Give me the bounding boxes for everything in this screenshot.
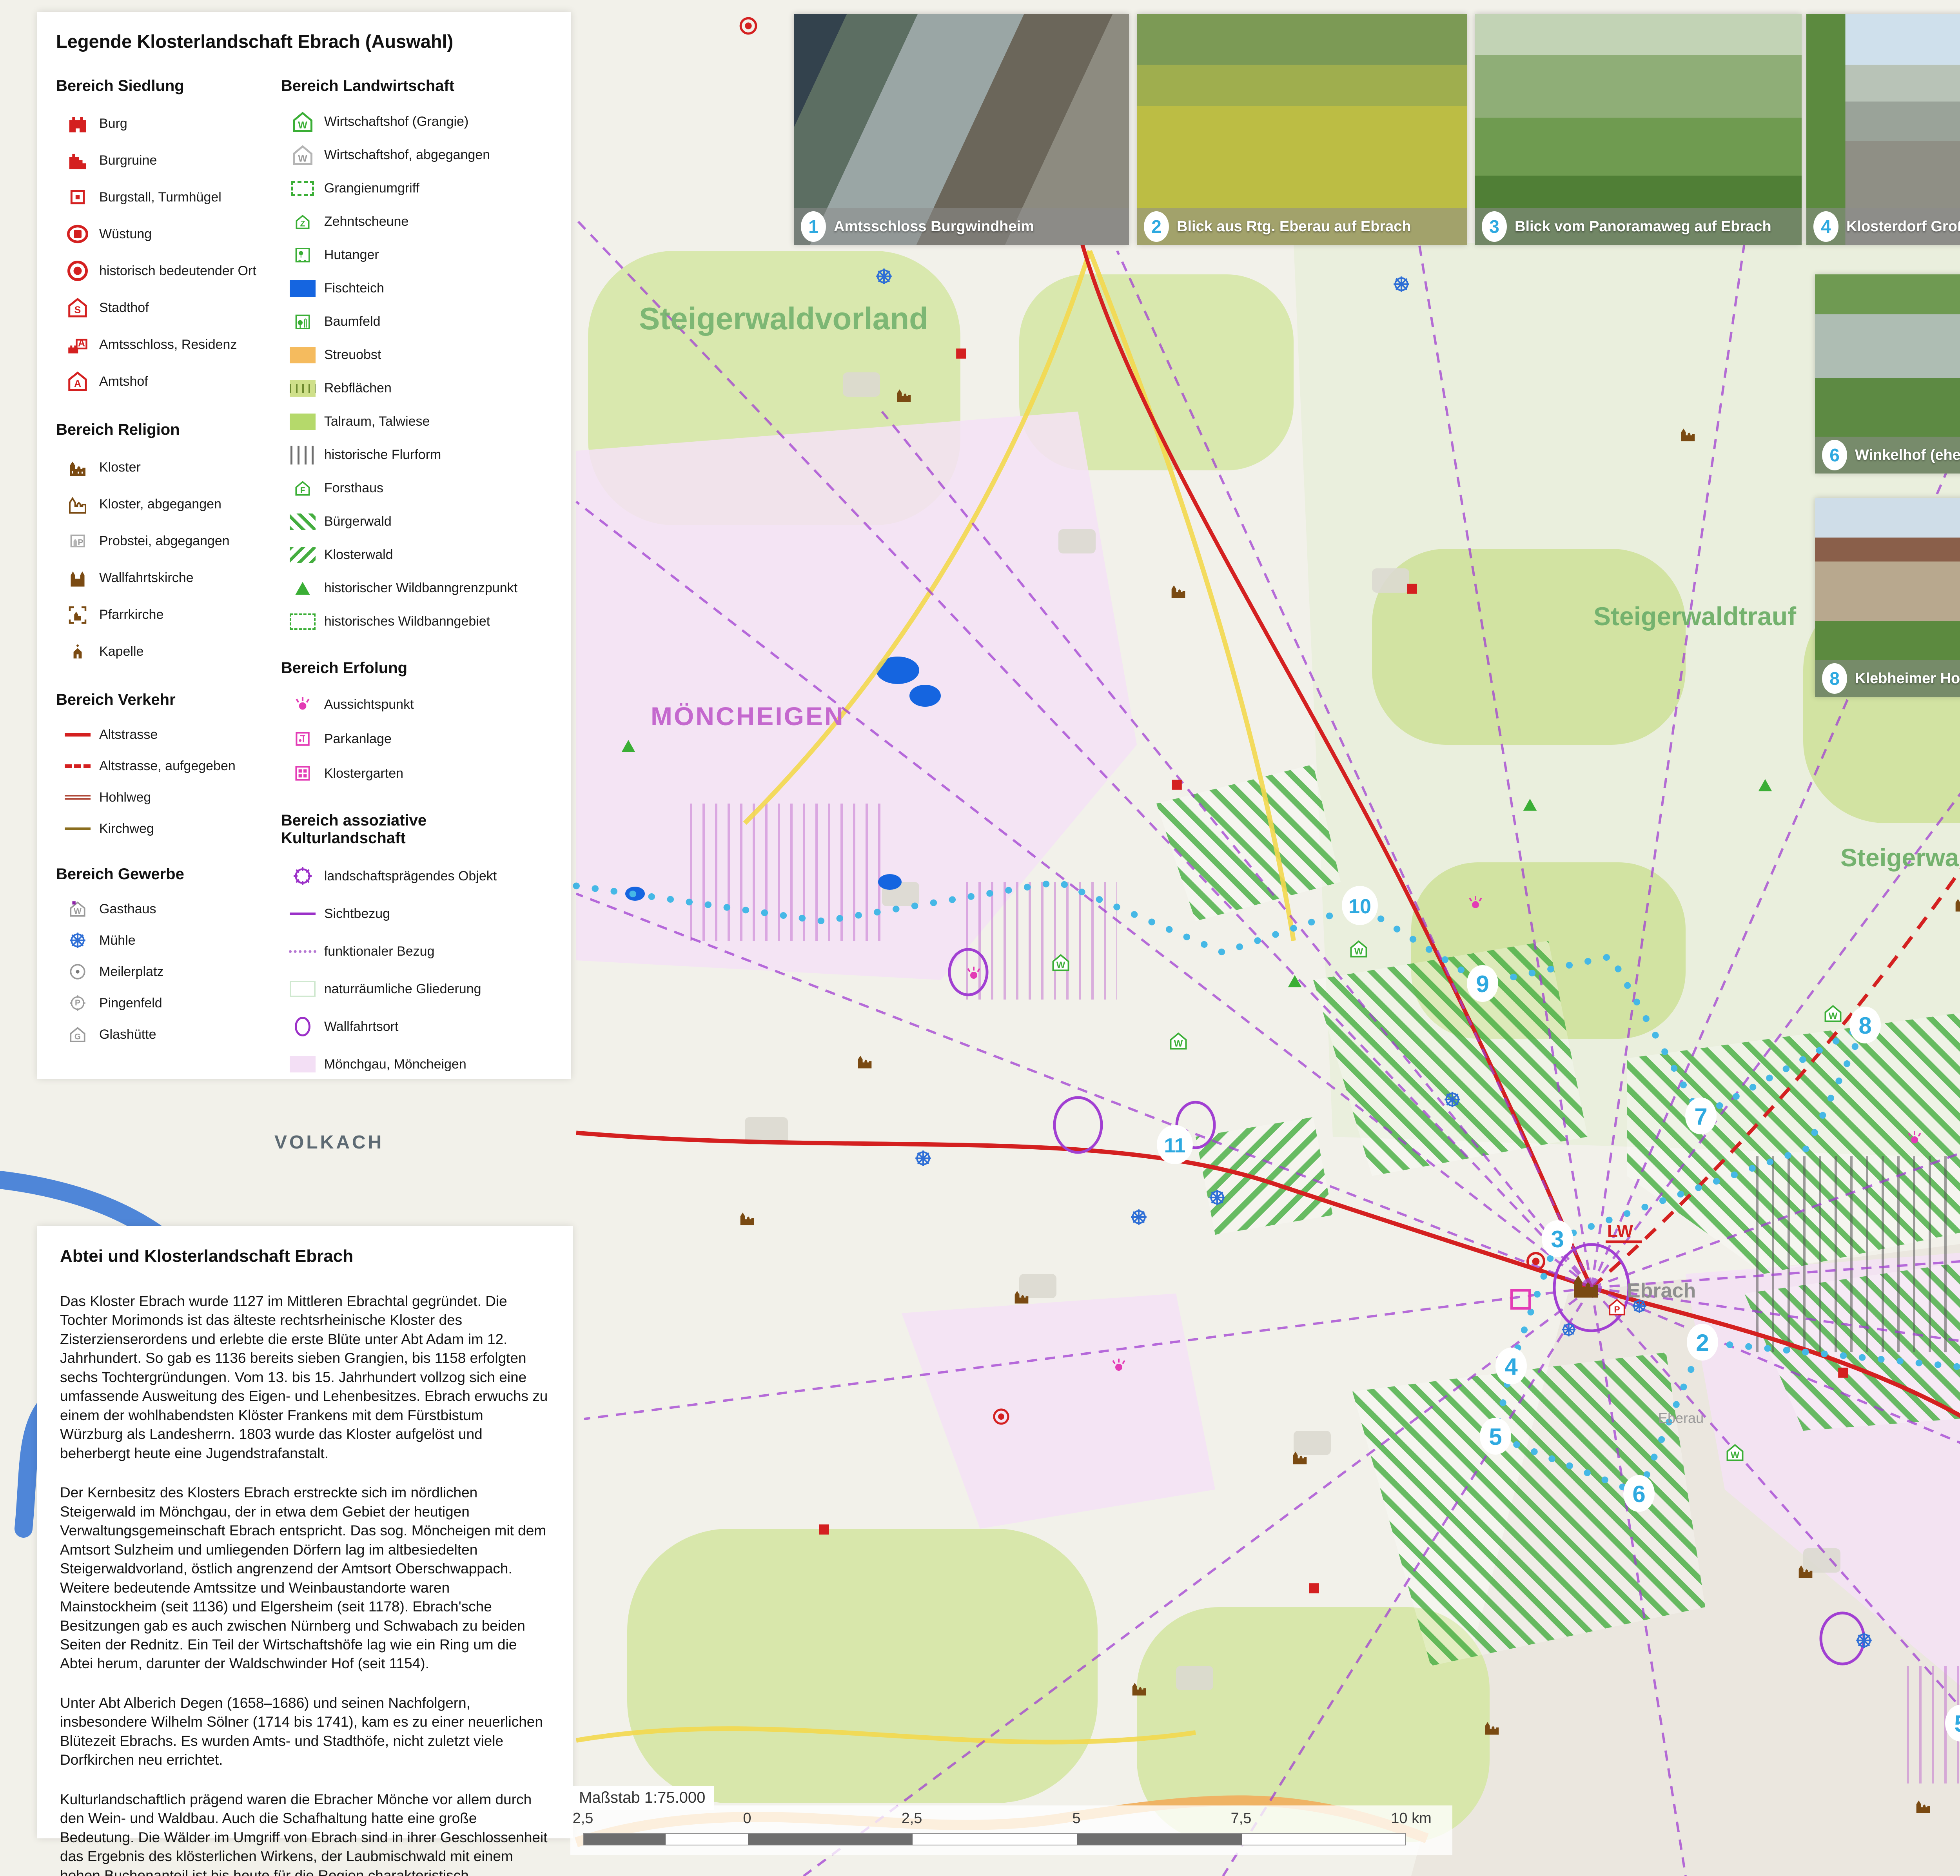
muehle-icon	[56, 931, 99, 950]
legend-item-streuobst: Streuobst	[281, 338, 552, 372]
legend-item-altstrasse-aufg: Altstrasse, aufgegeben	[56, 750, 269, 782]
photo-number-badge: 8	[1822, 663, 1847, 694]
legend-section-gewerbe: Bereich Gewerbe WGasthaus Mühle Meilerpl…	[56, 865, 269, 1050]
legend-item-hutanger: Hutanger	[281, 238, 552, 272]
photo-2: 2Blick aus Rtg. Eberau auf Ebrach	[1137, 14, 1467, 245]
legend-item-burgruine: Burgruine	[56, 142, 269, 179]
svg-text:3: 3	[1551, 1226, 1564, 1252]
scale-tick: 5	[1072, 1810, 1080, 1827]
legend-section-siedlung: Bereich Siedlung Burg Burgruine Burgstal…	[56, 77, 269, 400]
legend-item-wirtschaftshof-abg: WWirtschaftshof, abgegangen	[281, 138, 552, 172]
map-poster: W P	[0, 0, 1960, 1876]
photo-caption: Klosterdorf Großgressingen	[1846, 218, 1960, 235]
svg-text:2: 2	[1696, 1330, 1709, 1356]
burgstall-icon	[56, 187, 99, 207]
label-volkach: VOLKACH	[274, 1132, 384, 1153]
label-steigerwaldvorland: Steigerwaldvorland	[639, 301, 928, 336]
amtsschloss-icon: A	[56, 333, 99, 356]
photo-1: 1Amtsschloss Burgwindheim	[794, 14, 1129, 245]
fischteich-icon	[281, 280, 324, 297]
svg-text:P: P	[75, 998, 80, 1007]
legend-item-kloster: Kloster	[56, 449, 269, 486]
legend-item-baumfeld: Baumfeld	[281, 305, 552, 338]
wuestung-icon	[56, 222, 99, 246]
hist-ort-icon	[56, 259, 99, 283]
legend-item-grangienumgriff: Grangienumgriff	[281, 172, 552, 205]
scale-tick: 7,5	[1231, 1810, 1252, 1827]
legend-item-landschaftsobjekt: landschaftsprägendes Objekt	[281, 857, 552, 895]
legend-item-wirtschaftshof: WWirtschaftshof (Grangie)	[281, 105, 552, 138]
label-lw: LW	[1607, 1221, 1633, 1241]
legend-item-talraum: Talraum, Talwiese	[281, 405, 552, 438]
svg-text:5: 5	[1954, 1711, 1960, 1737]
legend-item-wuestung: Wüstung	[56, 216, 269, 252]
legend-item-hohlweg: Hohlweg	[56, 782, 269, 813]
scale-tick: 0	[743, 1810, 751, 1827]
legend-item-kirchweg: Kirchweg	[56, 813, 269, 844]
kloster-abgegangen-icon	[56, 492, 99, 516]
legend-item-stadthof: SStadthof	[56, 289, 269, 326]
hohlweg-icon	[56, 795, 99, 800]
legend-item-sichtbezug: Sichtbezug	[281, 895, 552, 933]
legend-section-erholung: Bereich Erfolung Aussichtspunkt Parkanla…	[281, 659, 552, 791]
svg-text:7: 7	[1694, 1103, 1707, 1130]
legend-item-flurform: historische Flurform	[281, 438, 552, 472]
svg-text:F: F	[300, 486, 305, 495]
legend-item-fischteich: Fischteich	[281, 272, 552, 305]
burgruine-icon	[56, 149, 99, 172]
legend-panel: Legende Klosterlandschaft Ebrach (Auswah…	[37, 12, 571, 1079]
svg-text:A: A	[78, 338, 85, 349]
article-paragraph: Unter Abt Alberich Degen (1658–1686) und…	[60, 1694, 550, 1770]
moenchgau-swatch	[281, 1056, 324, 1072]
svg-text:W: W	[298, 153, 307, 164]
legend-item-glashuette: GGlashütte	[56, 1019, 269, 1050]
legend-item-altstrasse: Altstrasse	[56, 719, 269, 750]
svg-text:4: 4	[1504, 1353, 1518, 1380]
glashuette-icon: G	[56, 1025, 99, 1044]
legend-item-zehntscheune: ZZehntscheune	[281, 205, 552, 238]
grangienumgriff-icon	[281, 181, 324, 196]
wildbanngebiet-icon	[281, 613, 324, 630]
legend-item-amtshof: AAmtshof	[56, 363, 269, 400]
photo-number-badge: 3	[1482, 211, 1507, 242]
photo-6: 6Winkelhof (ehem. Grangie)	[1815, 274, 1960, 474]
legend-item-moenchgau: Mönchgau, Möncheigen	[281, 1045, 552, 1079]
legend-title: Legende Klosterlandschaft Ebrach (Auswah…	[56, 31, 552, 52]
label-eberau: Eberau	[1658, 1410, 1704, 1426]
article-paragraph: Kulturlandschaftlich prägend waren die E…	[60, 1790, 550, 1876]
gasthaus-icon: W	[56, 899, 99, 919]
legend-section-verkehr: Bereich Verkehr Altstrasse Altstrasse, a…	[56, 691, 269, 844]
wildbanngrenzpunkt-icon	[281, 579, 324, 598]
photo-caption: Winkelhof (ehem. Grangie)	[1855, 447, 1960, 464]
legend-item-wildbanngebiet: historisches Wildbanngebiet	[281, 605, 552, 638]
article-paragraph: Der Kernbesitz des Klosters Ebrach erstr…	[60, 1483, 550, 1673]
zehntscheune-icon: Z	[281, 212, 324, 232]
photo-caption: Klebheimer Hof (ehem. Grangie)	[1855, 670, 1960, 687]
flurform-icon	[281, 446, 324, 464]
probstei-icon: P	[56, 531, 99, 551]
svg-text:5: 5	[1489, 1424, 1502, 1450]
photo-caption: Amtsschloss Burgwindheim	[834, 218, 1034, 235]
svg-text:P: P	[78, 538, 83, 547]
kloster-icon	[56, 455, 99, 479]
svg-text:11: 11	[1164, 1134, 1186, 1157]
legend-section-landwirtschaft: Bereich Landwirtschaft WWirtschaftshof (…	[281, 77, 552, 638]
legend-item-rebflaechen: Rebflächen	[281, 372, 552, 405]
grangie-abgegangen-icon: W	[281, 143, 324, 167]
legend-item-forsthaus: FForsthaus	[281, 472, 552, 505]
kirchweg-icon	[56, 827, 99, 830]
pingenfeld-icon: P	[56, 993, 99, 1013]
svg-text:8: 8	[1858, 1012, 1871, 1039]
legend-item-kloster-abg: Kloster, abgegangen	[56, 486, 269, 523]
legend-item-funktionaler-bezug: funktionaler Bezug	[281, 933, 552, 970]
svg-text:A: A	[74, 378, 81, 389]
wallfahrtskirche-icon	[56, 566, 99, 590]
legend-item-meilerplatz: Meilerplatz	[56, 956, 269, 987]
hutanger-icon	[281, 245, 324, 265]
forsthaus-icon: F	[281, 479, 324, 498]
photo-caption: Blick vom Panoramaweg auf Ebrach	[1515, 218, 1771, 235]
buergerwald-icon	[281, 513, 324, 530]
altstrasse-icon	[56, 733, 99, 737]
legend-item-pingenfeld: PPingenfeld	[56, 987, 269, 1019]
aussichtspunkt-icon	[281, 695, 324, 714]
streuobst-icon	[281, 347, 324, 363]
legend-item-burgstall: Burgstall, Turmhügel	[56, 179, 269, 216]
scale-tick: 2,5	[573, 1810, 593, 1827]
legend-section-assoziativ: Bereich assoziative Kulturlandschaft lan…	[281, 812, 552, 1079]
legend-section-religion: Bereich Religion Kloster Kloster, abgega…	[56, 421, 269, 670]
photo-8: 8Klebheimer Hof (ehem. Grangie)	[1815, 498, 1960, 697]
legend-item-gasthaus: WGasthaus	[56, 893, 269, 925]
grangie-icon: W	[281, 110, 324, 134]
label-ebrach: Ebrach	[1627, 1279, 1696, 1302]
klosterwald-icon	[281, 547, 324, 563]
legend-item-wallfahrtsort: Wallfahrtsort	[281, 1008, 552, 1045]
label-steigerwaldtrauf: Steigerwaldtrauf	[1593, 602, 1797, 631]
legend-item-burg: Burg	[56, 105, 269, 142]
legend-item-parkanlage: Parkanlage	[281, 722, 552, 756]
svg-text:G: G	[74, 1032, 81, 1041]
legend-item-wallfahrtskirche: Wallfahrtskirche	[56, 559, 269, 596]
naturraum-icon	[281, 981, 324, 997]
legend-item-wildbannpunkt: historischer Wildbanngrenzpunkt	[281, 572, 552, 605]
article-paragraph: Das Kloster Ebrach wurde 1127 im Mittler…	[60, 1292, 550, 1463]
meilerplatz-icon	[56, 962, 99, 982]
article-panel: Abtei und Klosterlandschaft Ebrach Das K…	[37, 1226, 573, 1838]
amtshof-icon: A	[56, 370, 99, 393]
legend-item-aussichtspunkt: Aussichtspunkt	[281, 687, 552, 722]
legend-item-klostergarten: Klostergarten	[281, 756, 552, 791]
photo-number-badge: 6	[1822, 440, 1847, 470]
label-hochflaeche: Steigerwald-Hochfläche	[1840, 844, 1960, 872]
photo-caption: Blick aus Rtg. Eberau auf Ebrach	[1177, 218, 1411, 235]
burg-icon	[56, 112, 99, 135]
pfarrkirche-icon	[56, 603, 99, 626]
stadthof-icon: S	[56, 296, 99, 319]
svg-text:W: W	[74, 907, 82, 916]
wallfahrtsort-icon	[281, 1015, 324, 1038]
funktionaler-bezug-icon	[281, 950, 324, 953]
kapelle-icon	[56, 642, 99, 661]
article-title: Abtei und Klosterlandschaft Ebrach	[60, 1246, 550, 1266]
photo-4: 4Klosterdorf Großgressingen	[1806, 14, 1960, 245]
legend-item-probstei: PProbstei, abgegangen	[56, 523, 269, 559]
landschaftsobjekt-icon	[281, 864, 324, 888]
legend-item-pfarrkirche: Pfarrkirche	[56, 596, 269, 633]
scale-tick: 2,5	[902, 1810, 922, 1827]
legend-item-muehle: Mühle	[56, 925, 269, 956]
photo-number-badge: 1	[801, 211, 826, 242]
photo-3: 3Blick vom Panoramaweg auf Ebrach	[1475, 14, 1802, 245]
svg-text:S: S	[74, 305, 81, 316]
talraum-icon	[281, 414, 324, 430]
legend-item-naturraum: naturräumliche Gliederung	[281, 970, 552, 1008]
svg-text:10: 10	[1348, 895, 1371, 918]
legend-item-hist-ort: historisch bedeutender Ort	[56, 252, 269, 289]
legend-item-buergerwald: Bürgerwald	[281, 505, 552, 538]
baumfeld-icon	[281, 312, 324, 332]
scale-tick: 10 km	[1391, 1810, 1431, 1827]
legend-item-kapelle: Kapelle	[56, 633, 269, 670]
legend-item-klosterwald: Klosterwald	[281, 538, 552, 572]
svg-text:6: 6	[1632, 1481, 1645, 1507]
scale-bar-segments	[583, 1833, 1406, 1845]
svg-text:W: W	[298, 120, 307, 131]
altstrasse-aufgegeben-icon	[56, 764, 99, 768]
legend-item-amtsschloss: AAmtsschloss, Residenz	[56, 326, 269, 363]
parkanlage-icon	[281, 729, 324, 749]
label-moencheigen: MÖNCHEIGEN	[651, 702, 845, 731]
photo-number-badge: 2	[1144, 211, 1169, 242]
scale-bar: 2,5 0 2,5 5 7,5 10 km	[570, 1805, 1452, 1855]
photo-number-badge: 4	[1813, 211, 1838, 242]
svg-text:Z: Z	[300, 219, 305, 228]
rebflaechen-icon	[281, 380, 324, 397]
sichtbezug-icon	[281, 913, 324, 915]
svg-text:9: 9	[1476, 971, 1489, 997]
klostergarten-icon	[281, 764, 324, 783]
